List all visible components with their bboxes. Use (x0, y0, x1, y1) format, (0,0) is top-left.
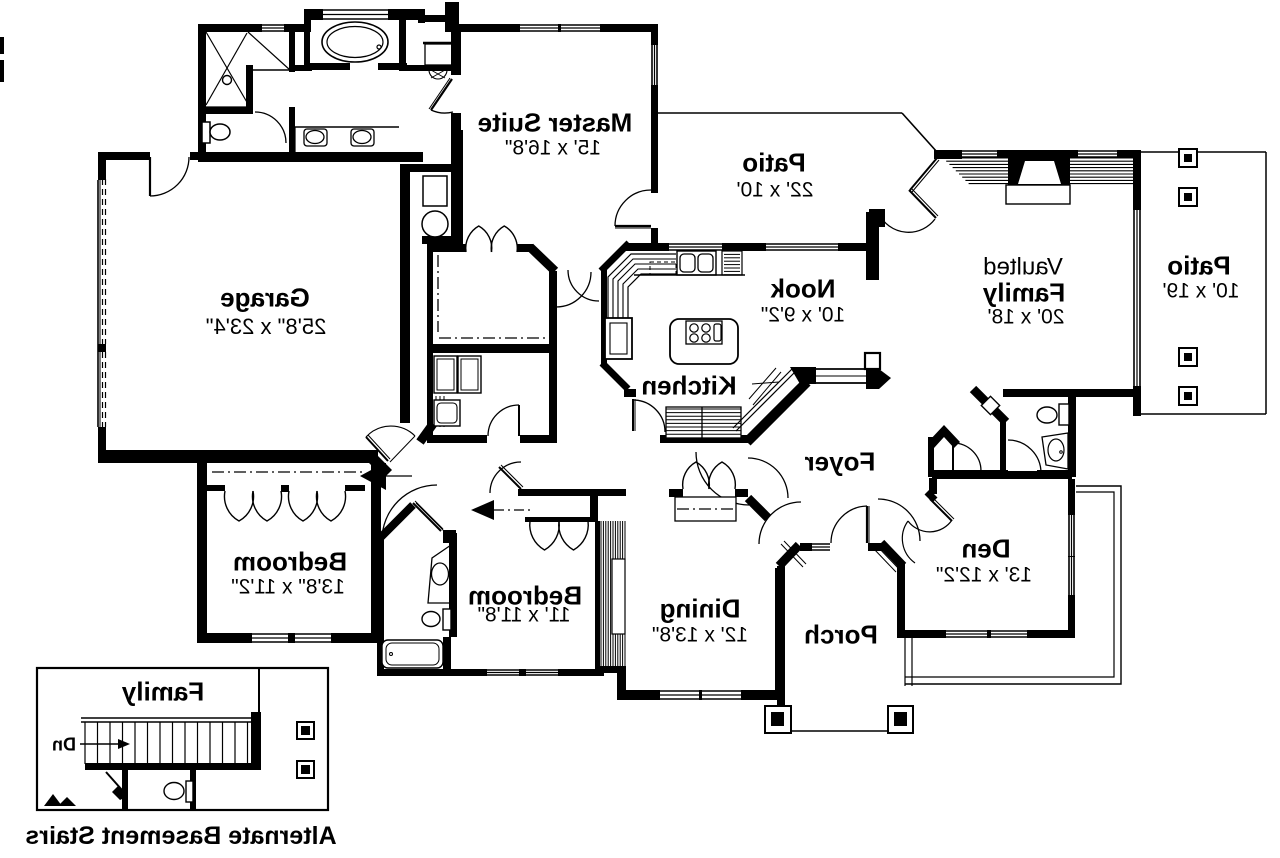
svg-text:Bedroom: Bedroom (233, 546, 347, 576)
svg-text:13'8" x 11'2": 13'8" x 11'2" (231, 576, 345, 599)
svg-text:Patio: Patio (742, 147, 806, 177)
svg-text:Alternate Basement Stairs: Alternate Basement Stairs (25, 822, 336, 850)
svg-text:Dining: Dining (660, 593, 741, 623)
svg-text:Family: Family (121, 676, 204, 706)
svg-text:13' x 12'2": 13' x 12'2" (936, 564, 1032, 587)
svg-text:10' x 9'2": 10' x 9'2" (761, 304, 845, 327)
svg-text:15' x 16'8": 15' x 16'8" (505, 137, 601, 160)
svg-text:Nook: Nook (770, 273, 836, 303)
svg-text:12' x 13'8": 12' x 13'8" (652, 624, 748, 647)
svg-text:22' x 10': 22' x 10' (737, 179, 814, 202)
svg-text:Family: Family (982, 277, 1065, 307)
svg-text:Porch: Porch (804, 619, 878, 649)
svg-text:10' x 19': 10' x 19' (1163, 280, 1240, 303)
svg-text:11' x 11'8": 11' x 11'8" (478, 604, 571, 627)
svg-text:Den: Den (961, 533, 1010, 563)
svg-text:Master Suite: Master Suite (478, 107, 633, 137)
svg-text:25'8" x 23'4": 25'8" x 23'4" (206, 314, 327, 339)
svg-text:Foyer: Foyer (805, 446, 876, 476)
svg-text:Patio: Patio (1167, 250, 1231, 280)
svg-text:Garage: Garage (220, 282, 310, 312)
svg-text:20' x 18': 20' x 18' (988, 306, 1065, 329)
svg-text:Kitchen: Kitchen (641, 370, 736, 400)
svg-text:Dn: Dn (52, 734, 76, 754)
